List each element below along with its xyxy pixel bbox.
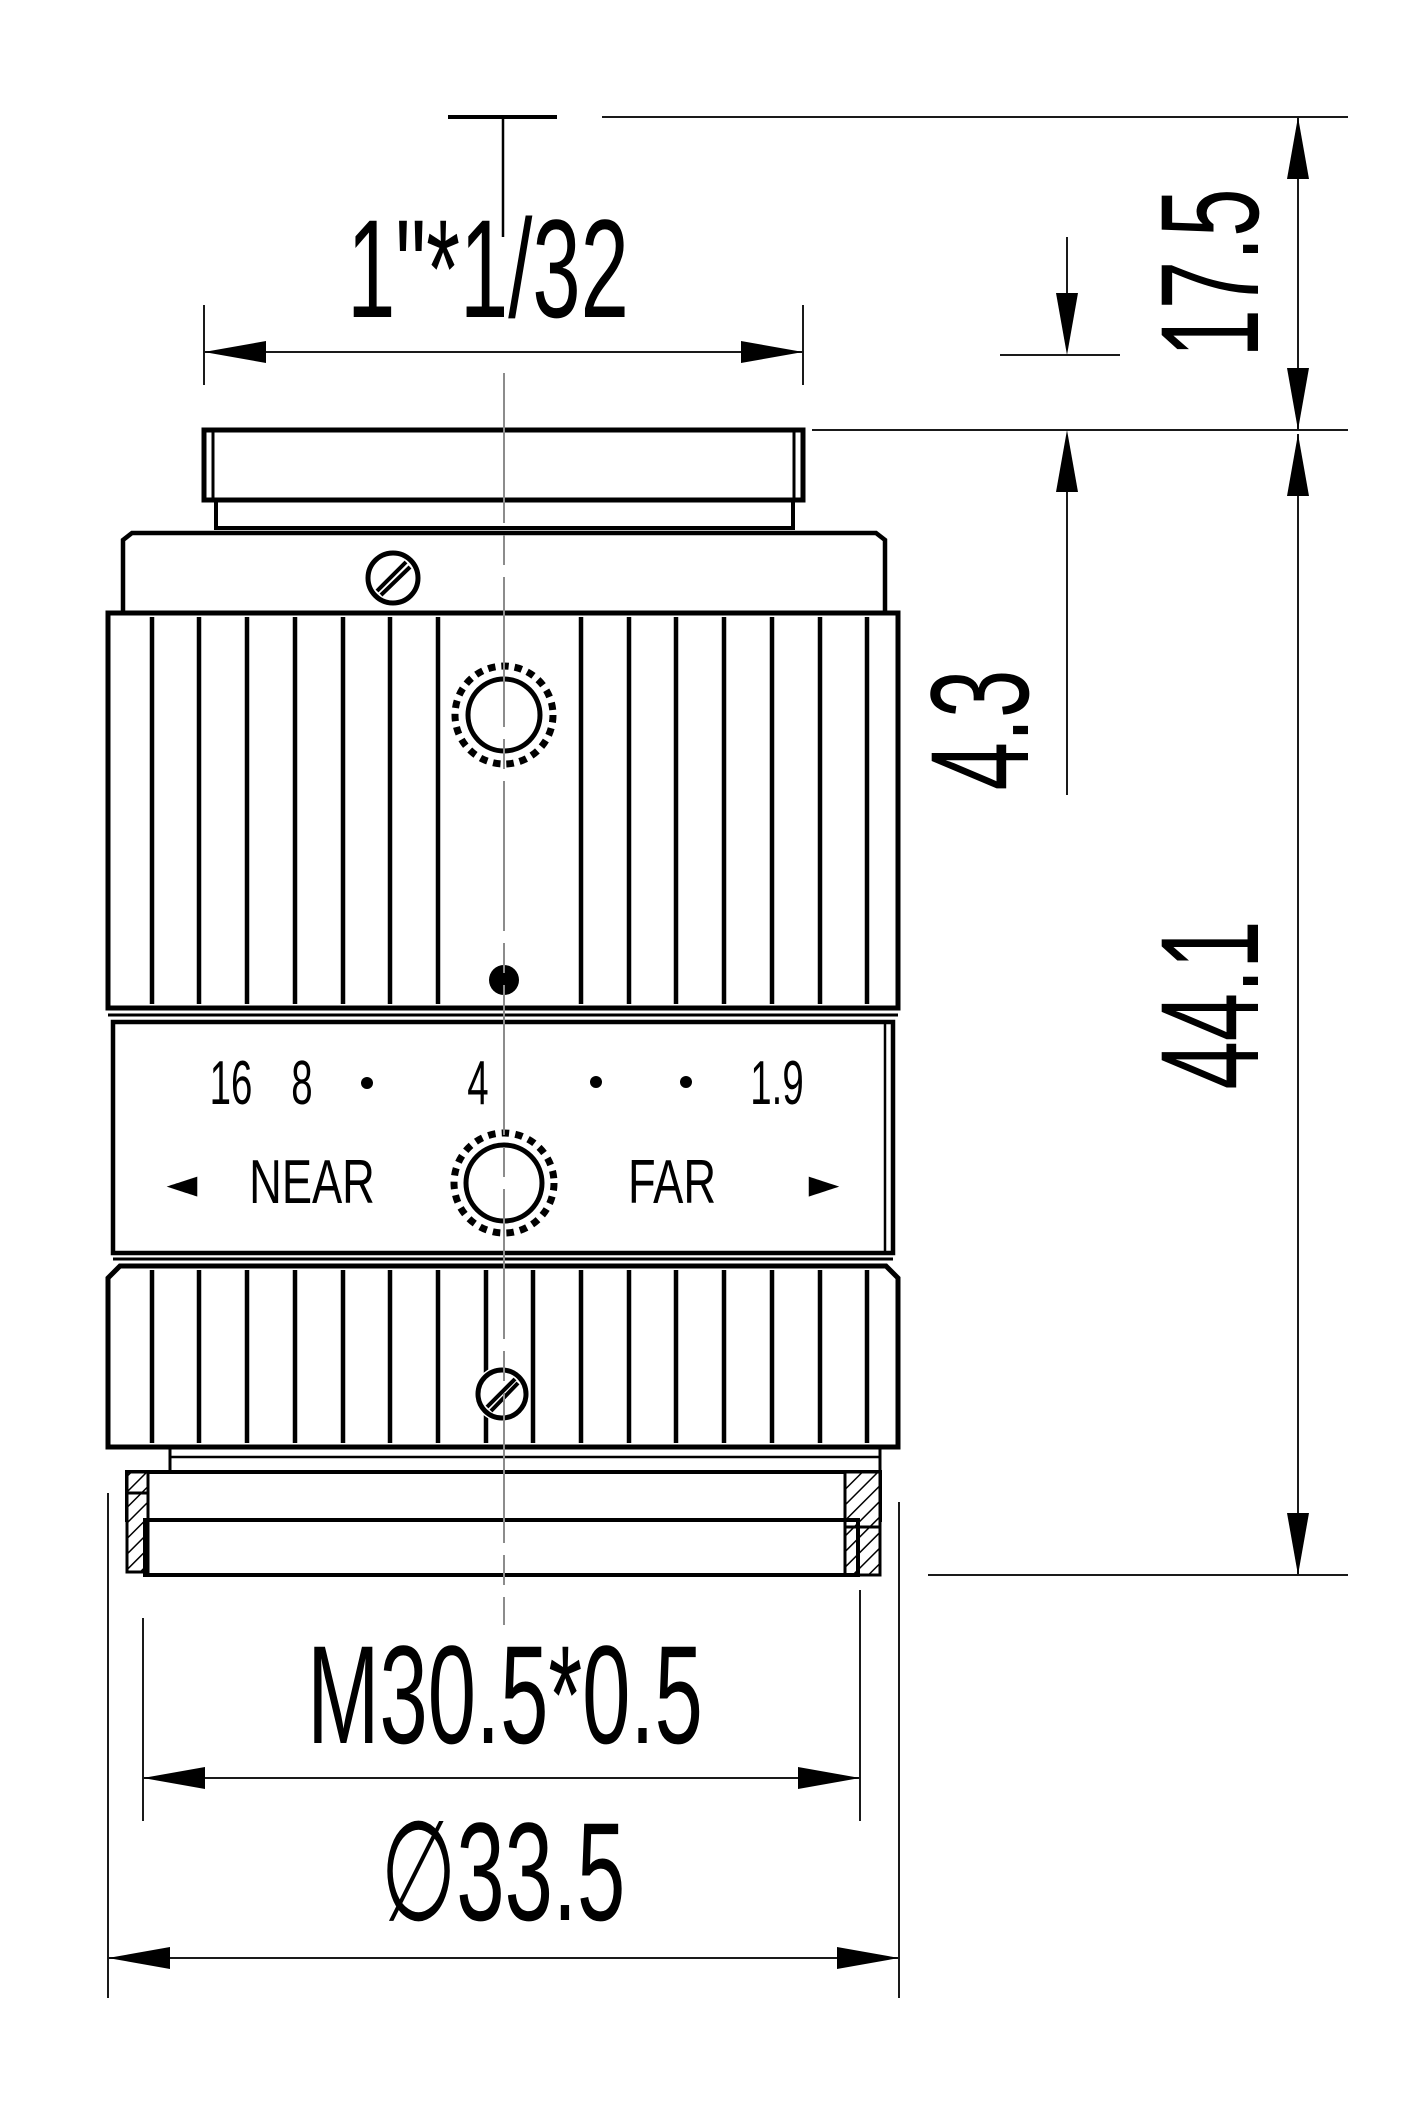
aperture-dot-icon — [361, 1077, 373, 1089]
bottom-thread-barrel — [145, 1520, 858, 1575]
aperture-dot-icon — [590, 1076, 602, 1088]
aperture-dot-icon — [680, 1076, 692, 1088]
aperture-mark-16: 16 — [210, 1048, 253, 1118]
body-length-label: 44.1 — [1132, 921, 1288, 1090]
far-arrow-icon: ► — [809, 1161, 840, 1207]
section-hatch-right — [845, 1472, 880, 1575]
outer-diameter-label: ∅33.5 — [381, 1794, 626, 1950]
aperture-mark-8: 8 — [291, 1048, 312, 1118]
dimension-body-length: 44.1 — [1132, 434, 1309, 1575]
focus-far-label: FAR — [628, 1147, 716, 1217]
aperture-mark-4: 4 — [467, 1048, 488, 1118]
dimension-rear-protrusion: 4.3 — [902, 237, 1078, 795]
flange-focal-distance-label: 17.5 — [1132, 189, 1288, 358]
dimension-bottom-thread: M30.5*0.5 — [143, 1590, 860, 1821]
drawing-canvas: 1"*1/32 17.5 4.3 44.1 — [0, 0, 1428, 2114]
arrowhead-left — [204, 341, 266, 363]
set-screw-bottom-icon — [474, 1366, 530, 1422]
dimension-top-thread: 1"*1/32 — [204, 191, 803, 385]
near-arrow-icon: ◄ — [167, 1161, 198, 1207]
set-screw-top-icon — [368, 553, 418, 603]
lens-technical-drawing: 1"*1/32 17.5 4.3 44.1 — [0, 0, 1428, 2114]
bottom-thread-label: M30.5*0.5 — [307, 1617, 703, 1773]
arrowhead-right — [741, 341, 803, 363]
aperture-mark-1-9: 1.9 — [750, 1048, 803, 1118]
focus-near-label: NEAR — [249, 1147, 375, 1217]
dimension-flange-focal-distance: 17.5 — [1132, 117, 1309, 430]
rear-protrusion-label: 4.3 — [902, 670, 1058, 791]
transition-ring — [170, 1447, 880, 1472]
top-thread-label: 1"*1/32 — [347, 191, 629, 347]
